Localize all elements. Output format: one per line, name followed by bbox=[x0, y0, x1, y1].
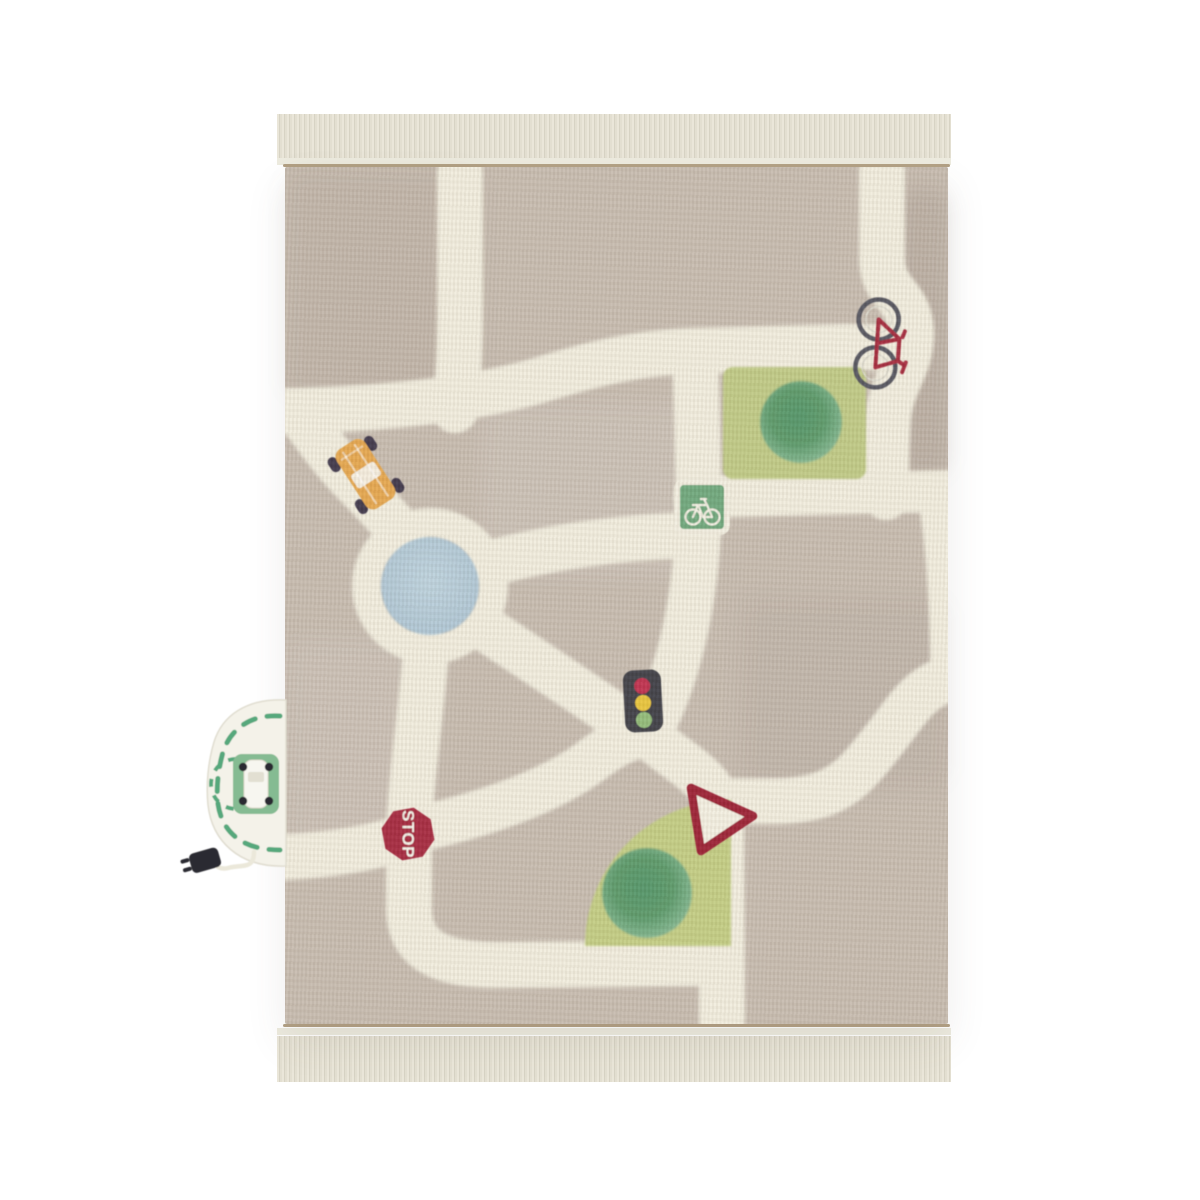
rug-fringe-bottom bbox=[277, 1036, 951, 1082]
road-right-edge bbox=[938, 497, 948, 675]
road-stop-to-light bbox=[409, 734, 646, 831]
charging-station-patch bbox=[170, 690, 300, 900]
traffic-light bbox=[622, 669, 663, 733]
road-below-park bbox=[695, 491, 948, 497]
rug-fringe-top bbox=[277, 114, 951, 160]
roundabout-pond bbox=[381, 537, 479, 635]
rug-edge-binding-bottom bbox=[277, 1028, 951, 1035]
road-stop-vertical bbox=[409, 649, 426, 909]
parked-car-window bbox=[248, 772, 264, 782]
parked-car-wheel bbox=[239, 797, 247, 805]
play-rug: STOP bbox=[285, 167, 948, 1024]
road-spoke-right bbox=[491, 535, 695, 563]
road-wavy-east bbox=[734, 679, 948, 801]
park-bush bbox=[602, 848, 692, 938]
stop-sign-label: STOP bbox=[399, 810, 418, 858]
rug-artwork: STOP bbox=[285, 167, 948, 1024]
bike-lane-sign bbox=[677, 482, 727, 532]
rug-selvedge-line-bottom bbox=[283, 1024, 950, 1027]
parked-car-wheel bbox=[265, 763, 273, 771]
charger-plug bbox=[179, 847, 222, 877]
parked-car bbox=[244, 760, 268, 808]
parked-car-wheel bbox=[265, 797, 273, 805]
park-bush bbox=[760, 381, 842, 463]
parked-car-wheel bbox=[239, 763, 247, 771]
product-photo: STOP bbox=[0, 0, 1200, 1200]
